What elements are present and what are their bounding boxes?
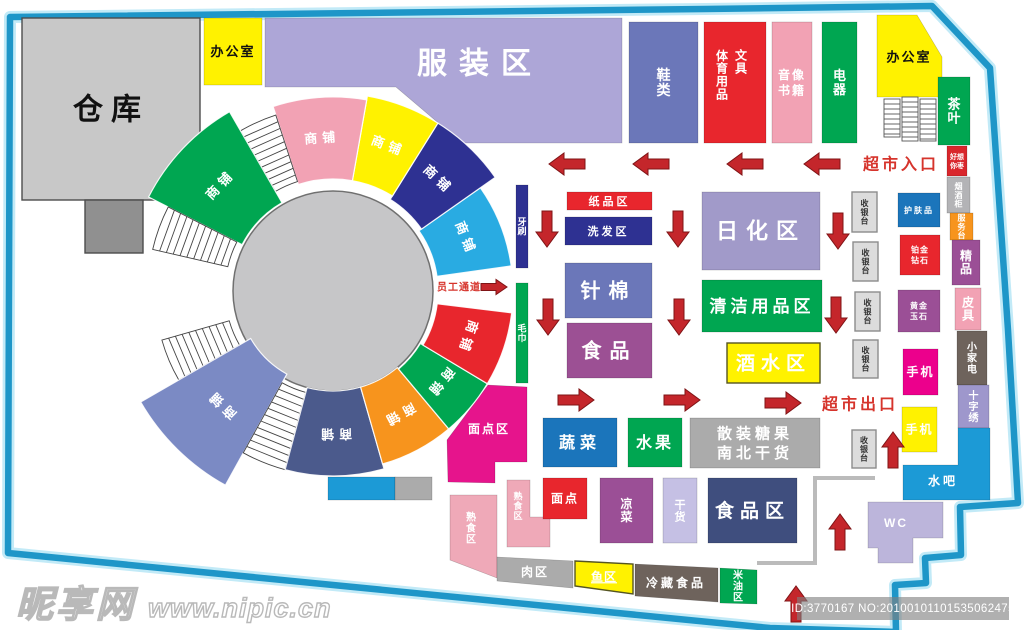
zone-label-exit-label: 超市出口 [821, 395, 898, 414]
zone-label-small-appliance: 小家电 [966, 341, 978, 376]
zone-label-liquor: 酒水区 [736, 353, 811, 375]
zone-label-boutique: 精品 [960, 248, 972, 276]
zone-label-office-left: 办公室 [210, 44, 255, 59]
watermark-id-bar: ID:3770167 NO:20100101101535062475 [797, 597, 1009, 620]
stairs-block-col-1 [902, 97, 918, 141]
zone-label-cooked-food-1: 熟食区 [512, 490, 523, 521]
zone-av-books [772, 22, 812, 143]
zone-label-wc: WC [884, 516, 908, 530]
zone-label-towel: 毛巾 [517, 322, 526, 343]
zone-label-pastry-area: 面点区 [468, 421, 510, 436]
zone-cyan-bar [328, 477, 395, 500]
zone-label-cleaning: 清洁用品区 [710, 296, 815, 316]
watermark-nipic: 昵享网 www.nipic.cn [16, 574, 332, 628]
stairs-block-col-2 [920, 99, 936, 141]
zone-label-food-area: 食品区 [715, 499, 790, 522]
stairs-block-col-0 [884, 99, 900, 137]
zone-label-service-desk: 服务台 [958, 214, 967, 240]
zone-gray-bar [395, 477, 432, 500]
zone-sports-stationery [704, 22, 766, 143]
arrow-right-3 [765, 392, 801, 414]
zone-label-phone-1: 手机 [906, 364, 934, 379]
zone-label-shampoo: 洗发区 [588, 224, 630, 238]
arrow-right-2 [664, 389, 700, 411]
zone-label-needle-cotton: 针棉 [581, 279, 637, 303]
arrow-down-5 [668, 299, 690, 335]
arrow-left-2 [633, 153, 669, 175]
arrow-down-2 [667, 211, 689, 247]
zone-label-dry-goods: 干货 [674, 498, 686, 523]
zone-label-cold-dishes: 凉菜 [619, 496, 632, 524]
zone-label-staff-passage-label: 员工通道 [437, 281, 481, 294]
arrow-staff [481, 280, 507, 295]
arrow-down-3 [827, 213, 849, 249]
arrow-right-1 [558, 389, 594, 411]
zone-warehouse-annex [85, 200, 143, 253]
zone-label-cashier-2: 收银台 [861, 248, 871, 275]
zone-label-skincare: 护肤品 [904, 205, 934, 215]
zone-label-cashier-1: 收银台 [860, 198, 870, 225]
zone-label-pastry: 面点 [551, 491, 579, 506]
zone-label-paper-goods: 纸品区 [589, 194, 631, 208]
watermark-id-text: ID:3770167 NO:20100101101535062475 [791, 603, 1015, 615]
zone-label-leather: 皮具 [961, 295, 974, 323]
zone-label-cashier-4: 收银台 [861, 345, 871, 372]
zone-label-vegetables: 蔬菜 [559, 433, 601, 452]
zone-label-entrance-label: 超市入口 [862, 155, 939, 174]
zone-label-cooked-food-2: 熟食区 [465, 511, 477, 546]
floor-plan-page: 仓库办公室服装区鞋类体育用品文具音像书籍电器办公室茶叶好想你枣烟酒柜服务台精品皮… [0, 0, 1024, 630]
zone-label-frozen-food: 冷藏食品 [646, 575, 706, 590]
arrow-up-2 [829, 514, 851, 550]
zone-label-tobacco-counter: 烟酒柜 [954, 181, 963, 208]
zone-label-water-bar: 水吧 [928, 473, 958, 488]
zone-label-fish: 鱼区 [591, 569, 617, 584]
arrow-up-1 [882, 432, 904, 468]
zone-label-phone-2: 手机 [905, 422, 933, 437]
zone-label-office-right: 办公室 [886, 50, 931, 65]
zone-label-electronics: 电器 [832, 68, 847, 97]
arrow-left-1 [549, 153, 585, 175]
zone-label-warehouse: 仓库 [73, 94, 149, 127]
watermark-url: www.nipic.cn [148, 593, 332, 624]
arrow-left-4 [804, 153, 840, 175]
zone-label-fruits: 水果 [636, 433, 674, 452]
arrow-down-1 [536, 211, 558, 247]
arrow-down-6 [825, 297, 847, 333]
zone-label-stationery-label: 文具 [735, 48, 748, 76]
wedge-shop-label-3: 商铺 [304, 129, 341, 146]
zone-label-cross-stitch: 十字绣 [969, 389, 980, 424]
zone-label-rice-oil: 米油区 [733, 569, 744, 604]
zone-label-daily-chemical: 日化区 [716, 219, 806, 244]
zone-label-shoes: 鞋类 [657, 67, 672, 98]
zone-label-toothbrush: 牙刷 [517, 217, 526, 237]
zone-gold-jade [898, 290, 940, 332]
zone-haoxiangni [947, 146, 967, 176]
zone-label-clothing: 服装区 [417, 48, 543, 81]
arrow-down-4 [537, 299, 559, 335]
watermark-brand: 昵享网 [16, 574, 136, 628]
zone-label-food-center: 食品 [582, 339, 638, 363]
arrow-left-3 [727, 153, 763, 175]
wedge-shop-label-10: 商铺 [316, 426, 352, 441]
zone-platinum-diamond [900, 235, 940, 275]
zone-label-tea: 茶叶 [947, 97, 961, 126]
zone-label-sports-label: 体育用品 [715, 48, 729, 102]
zone-label-cashier-3: 收银台 [863, 298, 873, 325]
zone-label-cashier-5: 收银台 [859, 435, 869, 462]
floor-plan-svg: 仓库办公室服装区鞋类体育用品文具音像书籍电器办公室茶叶好想你枣烟酒柜服务台精品皮… [0, 0, 1024, 630]
zone-label-meat: 肉区 [521, 564, 549, 579]
